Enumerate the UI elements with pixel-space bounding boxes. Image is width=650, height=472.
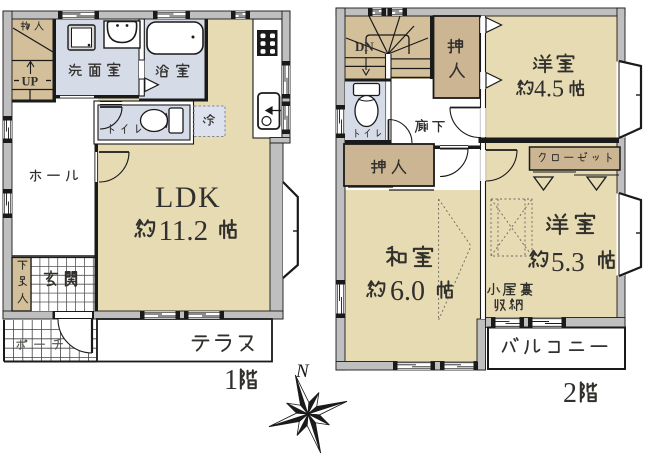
- svg-text:N: N: [295, 361, 310, 382]
- svg-text:LDK: LDK: [155, 181, 221, 214]
- svg-text:1: 1: [224, 365, 238, 396]
- svg-text:DN: DN: [355, 39, 374, 54]
- svg-text:5.3: 5.3: [551, 247, 585, 277]
- svg-text:2: 2: [563, 378, 577, 409]
- svg-text:11.2: 11.2: [159, 215, 209, 247]
- svg-text:6.0: 6.0: [390, 276, 425, 307]
- svg-text:4.5: 4.5: [534, 77, 564, 103]
- svg-text:UP: UP: [22, 75, 39, 89]
